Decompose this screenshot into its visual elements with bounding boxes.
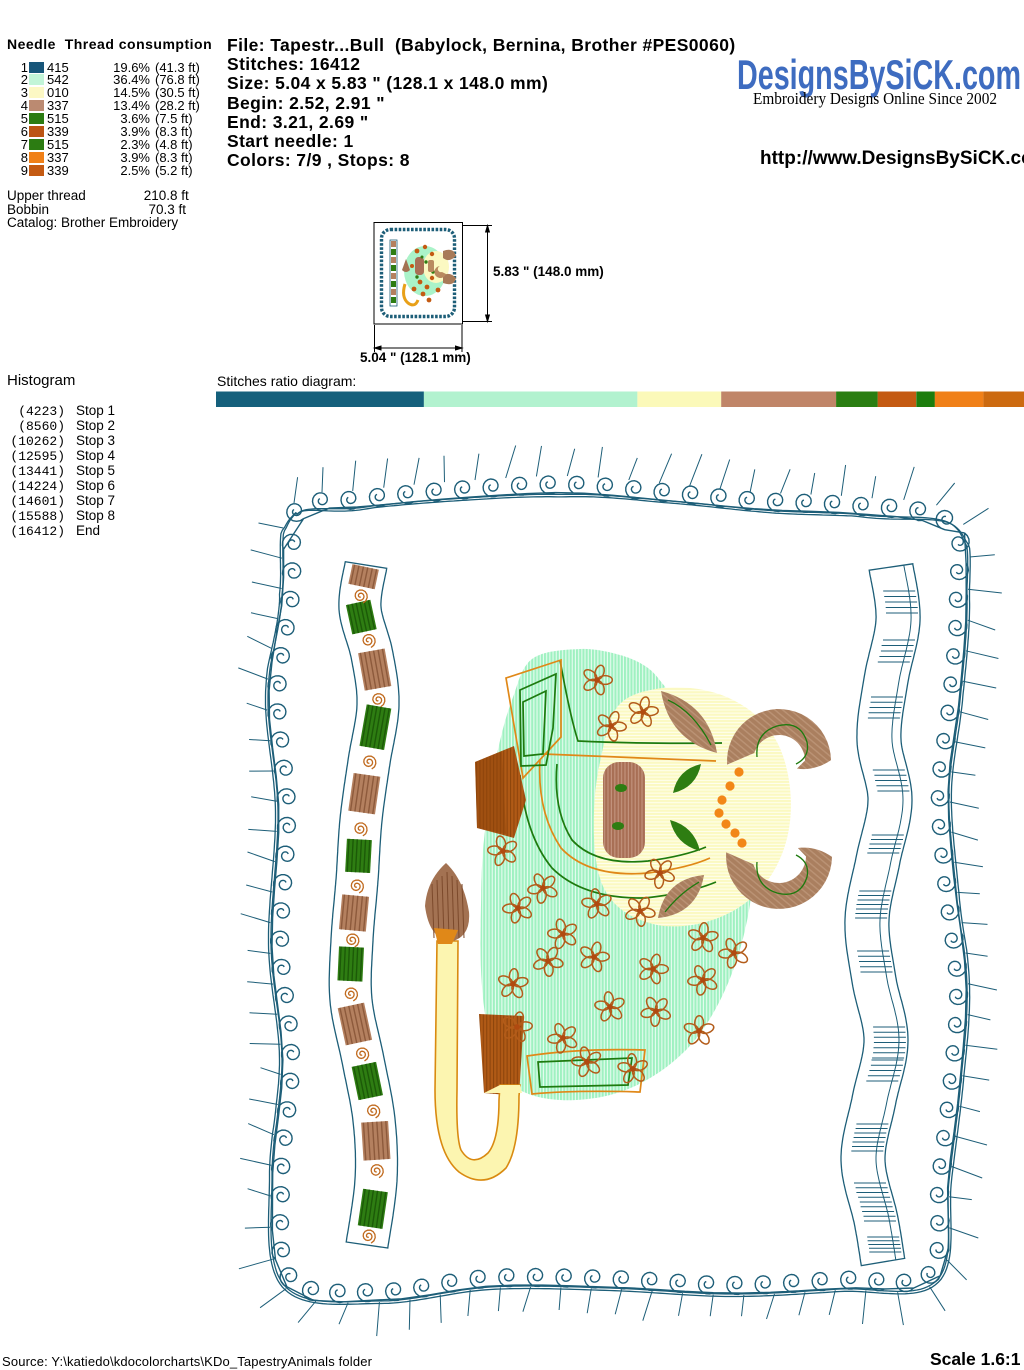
svg-text:5.04 " (128.1 mm): 5.04 " (128.1 mm) (360, 350, 471, 365)
svg-text:5.83 " (148.0 mm): 5.83 " (148.0 mm) (493, 264, 604, 279)
